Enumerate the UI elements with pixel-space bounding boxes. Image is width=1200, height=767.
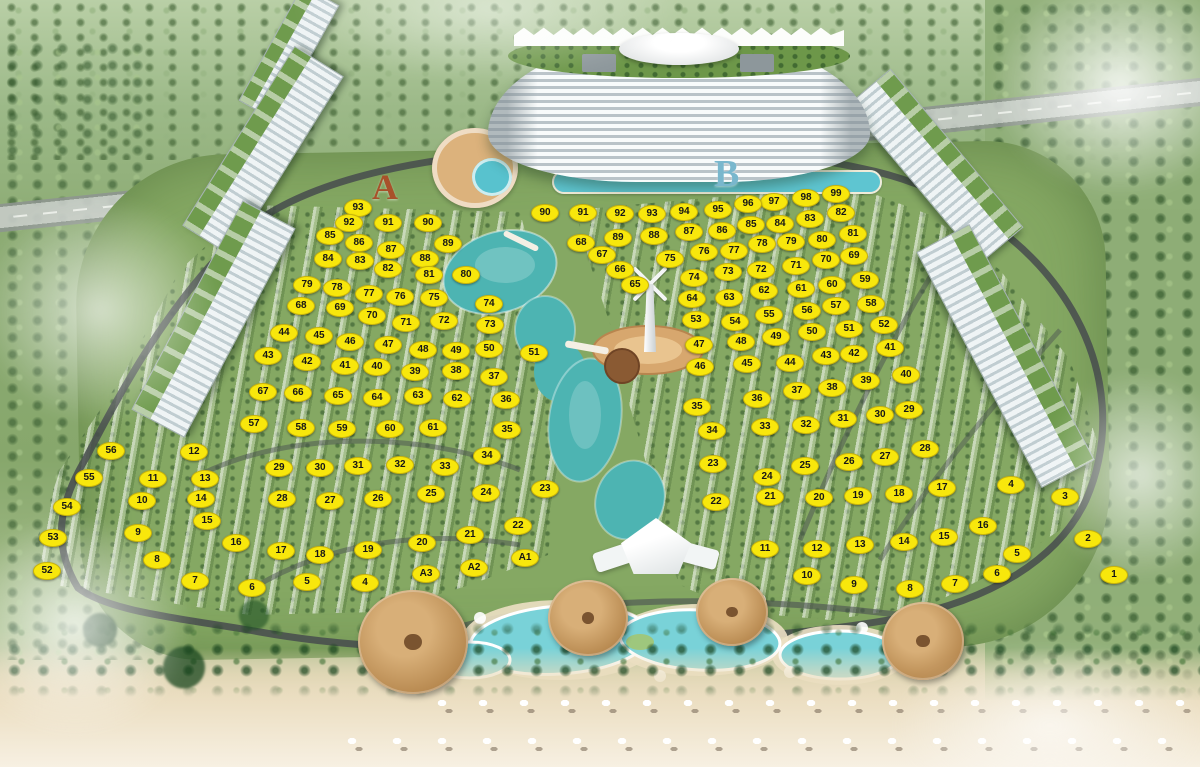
lot-marker-zone-b-75[interactable]: 75 — [656, 250, 684, 268]
lot-marker-zone-a-72[interactable]: 72 — [430, 312, 458, 330]
lot-marker-zone-b-35[interactable]: 35 — [683, 398, 711, 416]
lot-marker-zone-a-30[interactable]: 30 — [306, 459, 334, 477]
lot-marker-zone-b-15[interactable]: 15 — [930, 528, 958, 546]
lot-marker-zone-a-26[interactable]: 26 — [364, 490, 392, 508]
lot-marker-zone-a-42[interactable]: 42 — [293, 353, 321, 371]
lot-marker-zone-b-96[interactable]: 96 — [734, 195, 762, 213]
lot-marker-zone-b-4[interactable]: 4 — [997, 476, 1025, 494]
lot-marker-zone-b-89[interactable]: 89 — [604, 229, 632, 247]
lot-marker-zone-b-38[interactable]: 38 — [818, 379, 846, 397]
lot-marker-zone-a-70[interactable]: 70 — [358, 307, 386, 325]
lot-marker-zone-a-32[interactable]: 32 — [386, 456, 414, 474]
lot-marker-zone-a-64[interactable]: 64 — [363, 389, 391, 407]
lot-marker-zone-a-80[interactable]: 80 — [452, 266, 480, 284]
lot-marker-zone-b-97[interactable]: 97 — [760, 193, 788, 211]
lot-marker-zone-a-9[interactable]: 9 — [124, 524, 152, 542]
lot-marker-zone-b-36[interactable]: 36 — [743, 390, 771, 408]
lot-marker-zone-b-25[interactable]: 25 — [791, 457, 819, 475]
lot-marker-zone-a-7[interactable]: 7 — [181, 572, 209, 590]
lot-marker-zone-b-10[interactable]: 10 — [793, 567, 821, 585]
lot-marker-zone-a-22[interactable]: 22 — [504, 517, 532, 535]
lot-marker-zone-a-11[interactable]: 11 — [139, 470, 167, 488]
lot-marker-zone-b-86[interactable]: 86 — [708, 222, 736, 240]
lot-marker-zone-b-18[interactable]: 18 — [885, 485, 913, 503]
lot-marker-zone-b-73[interactable]: 73 — [714, 263, 742, 281]
lot-marker-zone-b-27[interactable]: 27 — [871, 448, 899, 466]
lot-marker-zone-a-18[interactable]: 18 — [306, 546, 334, 564]
lot-marker-zone-b-47[interactable]: 47 — [685, 336, 713, 354]
lot-marker-zone-a-44[interactable]: 44 — [270, 324, 298, 342]
lot-marker-zone-a-38[interactable]: 38 — [442, 362, 470, 380]
lot-marker-zone-a-62[interactable]: 62 — [443, 390, 471, 408]
lot-marker-zone-a-50[interactable]: 50 — [475, 340, 503, 358]
lot-marker-zone-b-54[interactable]: 54 — [721, 313, 749, 331]
lot-marker-zone-a-15[interactable]: 15 — [193, 512, 221, 530]
lot-marker-zone-a-27[interactable]: 27 — [316, 492, 344, 510]
markers-layer: 9392919089888786858483828180797877767574… — [0, 0, 1200, 767]
lot-marker-zone-b-81[interactable]: 81 — [839, 225, 867, 243]
lot-marker-zone-b-7[interactable]: 7 — [941, 575, 969, 593]
lot-marker-zone-a-8[interactable]: 8 — [143, 551, 171, 569]
lot-marker-zone-a-53[interactable]: 53 — [39, 529, 67, 547]
lot-marker-zone-b-23[interactable]: 23 — [699, 455, 727, 473]
lot-marker-zone-b-30[interactable]: 30 — [866, 406, 894, 424]
lot-marker-zone-b-91[interactable]: 91 — [569, 204, 597, 222]
lot-marker-zone-b-20[interactable]: 20 — [805, 489, 833, 507]
lot-marker-zone-a-6[interactable]: 6 — [238, 579, 266, 597]
zone-b-label: B — [714, 152, 739, 196]
lot-marker-zone-a-23[interactable]: 23 — [531, 480, 559, 498]
lot-marker-zone-a-48[interactable]: 48 — [409, 341, 437, 359]
lot-marker-zone-b-45[interactable]: 45 — [733, 355, 761, 373]
lot-marker-zone-b-79[interactable]: 79 — [777, 233, 805, 251]
lot-marker-zone-a-84[interactable]: 84 — [314, 250, 342, 268]
lot-marker-zone-a-47[interactable]: 47 — [374, 336, 402, 354]
lot-marker-zone-b-34[interactable]: 34 — [698, 422, 726, 440]
lot-marker-zone-a-63[interactable]: 63 — [404, 387, 432, 405]
lot-marker-zone-b-49[interactable]: 49 — [762, 328, 790, 346]
lot-marker-zone-a-83[interactable]: 83 — [346, 252, 374, 270]
lot-marker-zone-b-2[interactable]: 2 — [1074, 530, 1102, 548]
lot-marker-zone-a-5[interactable]: 5 — [293, 573, 321, 591]
lot-marker-zone-b-72[interactable]: 72 — [747, 261, 775, 279]
lot-marker-zone-b-80[interactable]: 80 — [808, 231, 836, 249]
masterplan-canvas: 9392919089888786858483828180797877767574… — [0, 0, 1200, 767]
lot-marker-zone-b-85[interactable]: 85 — [737, 216, 765, 234]
lot-marker-zone-a-12[interactable]: 12 — [180, 443, 208, 461]
lot-marker-zone-b-76[interactable]: 76 — [690, 243, 718, 261]
lot-marker-zone-b-40[interactable]: 40 — [892, 366, 920, 384]
lot-marker-zone-a-74[interactable]: 74 — [475, 295, 503, 313]
lot-marker-zone-b-78[interactable]: 78 — [748, 235, 776, 253]
lot-marker-zone-b-14[interactable]: 14 — [890, 533, 918, 551]
lot-marker-zone-b-24[interactable]: 24 — [753, 468, 781, 486]
lot-marker-zone-a-69[interactable]: 69 — [326, 299, 354, 317]
lot-marker-zone-b-11[interactable]: 11 — [751, 540, 779, 558]
lot-marker-zone-b-42[interactable]: 42 — [840, 345, 868, 363]
lot-marker-zone-b-9[interactable]: 9 — [840, 576, 868, 594]
lot-marker-zone-a-24[interactable]: 24 — [472, 484, 500, 502]
lot-marker-zone-a-35[interactable]: 35 — [493, 421, 521, 439]
lot-marker-zone-a-21[interactable]: 21 — [456, 526, 484, 544]
lot-marker-zone-a-28[interactable]: 28 — [268, 490, 296, 508]
lot-marker-zone-b-50[interactable]: 50 — [798, 323, 826, 341]
lot-marker-zone-a-55[interactable]: 55 — [75, 469, 103, 487]
lot-marker-zone-b-46[interactable]: 46 — [686, 358, 714, 376]
lot-marker-zone-a-82[interactable]: 82 — [374, 260, 402, 278]
lot-marker-zone-a-85[interactable]: 85 — [316, 227, 344, 245]
lot-marker-zone-b-33[interactable]: 33 — [751, 418, 779, 436]
lot-marker-zone-b-51[interactable]: 51 — [835, 320, 863, 338]
lot-marker-zone-a-10[interactable]: 10 — [128, 492, 156, 510]
lot-marker-zone-b-61[interactable]: 61 — [787, 280, 815, 298]
lot-marker-zone-a-60[interactable]: 60 — [376, 420, 404, 438]
lot-marker-zone-b-8[interactable]: 8 — [896, 580, 924, 598]
lot-marker-zone-a-34[interactable]: 34 — [473, 447, 501, 465]
lot-marker-zone-b-1[interactable]: 1 — [1100, 566, 1128, 584]
lot-marker-zone-b-12[interactable]: 12 — [803, 540, 831, 558]
lot-marker-zone-a-52[interactable]: 52 — [33, 562, 61, 580]
lot-marker-zone-b-87[interactable]: 87 — [675, 223, 703, 241]
lot-marker-zone-b-17[interactable]: 17 — [928, 479, 956, 497]
lot-marker-zone-b-63[interactable]: 63 — [715, 289, 743, 307]
lot-marker-zone-a-46[interactable]: 46 — [336, 333, 364, 351]
lot-marker-zone-b-94[interactable]: 94 — [670, 203, 698, 221]
lot-marker-zone-b-71[interactable]: 71 — [782, 257, 810, 275]
lot-marker-zone-a-58[interactable]: 58 — [287, 419, 315, 437]
lot-marker-zone-a-14[interactable]: 14 — [187, 490, 215, 508]
lot-marker-zone-b-26[interactable]: 26 — [835, 453, 863, 471]
lot-marker-zone-a-A3[interactable]: A3 — [412, 565, 440, 583]
lot-marker-zone-a-45[interactable]: 45 — [305, 327, 333, 345]
lot-marker-zone-b-52[interactable]: 52 — [870, 316, 898, 334]
lot-marker-zone-b-6[interactable]: 6 — [983, 565, 1011, 583]
lot-marker-zone-b-53[interactable]: 53 — [682, 311, 710, 329]
lot-marker-zone-b-58[interactable]: 58 — [857, 295, 885, 313]
lot-marker-zone-b-62[interactable]: 62 — [750, 282, 778, 300]
lot-marker-zone-b-43[interactable]: 43 — [812, 347, 840, 365]
lot-marker-zone-a-13[interactable]: 13 — [191, 470, 219, 488]
lot-marker-zone-b-92[interactable]: 92 — [606, 205, 634, 223]
lot-marker-zone-b-74[interactable]: 74 — [680, 269, 708, 287]
lot-marker-zone-a-68[interactable]: 68 — [287, 297, 315, 315]
lot-marker-zone-b-31[interactable]: 31 — [829, 410, 857, 428]
zone-a-label: A — [372, 166, 398, 208]
lot-marker-zone-a-37[interactable]: 37 — [480, 368, 508, 386]
lot-marker-zone-b-22[interactable]: 22 — [702, 493, 730, 511]
lot-marker-zone-b-55[interactable]: 55 — [755, 306, 783, 324]
lot-marker-zone-a-81[interactable]: 81 — [415, 266, 443, 284]
lot-marker-zone-a-86[interactable]: 86 — [345, 234, 373, 252]
lot-marker-zone-a-77[interactable]: 77 — [355, 285, 383, 303]
lot-marker-zone-a-91[interactable]: 91 — [374, 214, 402, 232]
lot-marker-zone-b-19[interactable]: 19 — [844, 487, 872, 505]
lot-marker-zone-a-65[interactable]: 65 — [324, 387, 352, 405]
lot-marker-zone-b-65[interactable]: 65 — [621, 276, 649, 294]
lot-marker-zone-b-69[interactable]: 69 — [840, 247, 868, 265]
lot-marker-zone-a-16[interactable]: 16 — [222, 534, 250, 552]
lot-marker-zone-a-43[interactable]: 43 — [254, 347, 282, 365]
lot-marker-zone-a-36[interactable]: 36 — [492, 391, 520, 409]
lot-marker-zone-b-82[interactable]: 82 — [827, 204, 855, 222]
lot-marker-zone-a-39[interactable]: 39 — [401, 363, 429, 381]
lot-marker-zone-a-31[interactable]: 31 — [344, 457, 372, 475]
lot-marker-zone-a-90[interactable]: 90 — [414, 214, 442, 232]
lot-marker-zone-a-73[interactable]: 73 — [476, 316, 504, 334]
lot-marker-zone-b-28[interactable]: 28 — [911, 440, 939, 458]
lot-marker-zone-a-A2[interactable]: A2 — [460, 559, 488, 577]
lot-marker-zone-b-99[interactable]: 99 — [822, 185, 850, 203]
lot-marker-zone-b-5[interactable]: 5 — [1003, 545, 1031, 563]
lot-marker-zone-b-95[interactable]: 95 — [704, 201, 732, 219]
lot-marker-zone-b-16[interactable]: 16 — [969, 517, 997, 535]
lot-marker-zone-a-75[interactable]: 75 — [420, 289, 448, 307]
lot-marker-zone-b-57[interactable]: 57 — [822, 297, 850, 315]
lot-marker-zone-b-56[interactable]: 56 — [793, 302, 821, 320]
lot-marker-zone-b-64[interactable]: 64 — [678, 290, 706, 308]
lot-marker-zone-a-79[interactable]: 79 — [293, 276, 321, 294]
lot-marker-zone-b-90[interactable]: 90 — [531, 204, 559, 222]
lot-marker-zone-b-39[interactable]: 39 — [852, 372, 880, 390]
lot-marker-zone-a-87[interactable]: 87 — [377, 241, 405, 259]
lot-marker-zone-a-56[interactable]: 56 — [97, 442, 125, 460]
lot-marker-zone-b-83[interactable]: 83 — [796, 210, 824, 228]
lot-marker-zone-a-A1[interactable]: A1 — [511, 549, 539, 567]
lot-marker-zone-a-67[interactable]: 67 — [249, 383, 277, 401]
lot-marker-zone-a-49[interactable]: 49 — [442, 342, 470, 360]
lot-marker-zone-a-20[interactable]: 20 — [408, 534, 436, 552]
lot-marker-zone-b-3[interactable]: 3 — [1051, 488, 1079, 506]
lot-marker-zone-b-48[interactable]: 48 — [727, 333, 755, 351]
lot-marker-zone-b-88[interactable]: 88 — [640, 227, 668, 245]
lot-marker-zone-b-32[interactable]: 32 — [792, 416, 820, 434]
lot-marker-zone-b-59[interactable]: 59 — [851, 271, 879, 289]
lot-marker-zone-b-98[interactable]: 98 — [792, 189, 820, 207]
lot-marker-zone-a-19[interactable]: 19 — [354, 541, 382, 559]
lot-marker-zone-a-29[interactable]: 29 — [265, 459, 293, 477]
lot-marker-zone-a-17[interactable]: 17 — [267, 542, 295, 560]
lot-marker-zone-b-13[interactable]: 13 — [846, 536, 874, 554]
lot-marker-zone-a-57[interactable]: 57 — [240, 415, 268, 433]
lot-marker-zone-b-44[interactable]: 44 — [776, 354, 804, 372]
lot-marker-zone-a-4[interactable]: 4 — [351, 574, 379, 592]
lot-marker-zone-b-41[interactable]: 41 — [876, 339, 904, 357]
lot-marker-zone-a-51[interactable]: 51 — [520, 344, 548, 362]
lot-marker-zone-b-21[interactable]: 21 — [756, 488, 784, 506]
lot-marker-zone-b-29[interactable]: 29 — [895, 401, 923, 419]
lot-marker-zone-b-70[interactable]: 70 — [812, 251, 840, 269]
lot-marker-zone-a-89[interactable]: 89 — [434, 235, 462, 253]
lot-marker-zone-b-84[interactable]: 84 — [766, 215, 794, 233]
lot-marker-zone-a-59[interactable]: 59 — [328, 420, 356, 438]
lot-marker-zone-a-61[interactable]: 61 — [419, 419, 447, 437]
lot-marker-zone-a-78[interactable]: 78 — [323, 279, 351, 297]
lot-marker-zone-a-41[interactable]: 41 — [331, 357, 359, 375]
lot-marker-zone-b-37[interactable]: 37 — [783, 382, 811, 400]
lot-marker-zone-a-40[interactable]: 40 — [363, 358, 391, 376]
lot-marker-zone-a-71[interactable]: 71 — [392, 314, 420, 332]
lot-marker-zone-b-60[interactable]: 60 — [818, 276, 846, 294]
lot-marker-zone-a-33[interactable]: 33 — [431, 458, 459, 476]
lot-marker-zone-b-77[interactable]: 77 — [720, 242, 748, 260]
lot-marker-zone-a-25[interactable]: 25 — [417, 485, 445, 503]
lot-marker-zone-a-76[interactable]: 76 — [386, 288, 414, 306]
lot-marker-zone-b-93[interactable]: 93 — [638, 205, 666, 223]
lot-marker-zone-a-66[interactable]: 66 — [284, 384, 312, 402]
lot-marker-zone-a-54[interactable]: 54 — [53, 498, 81, 516]
